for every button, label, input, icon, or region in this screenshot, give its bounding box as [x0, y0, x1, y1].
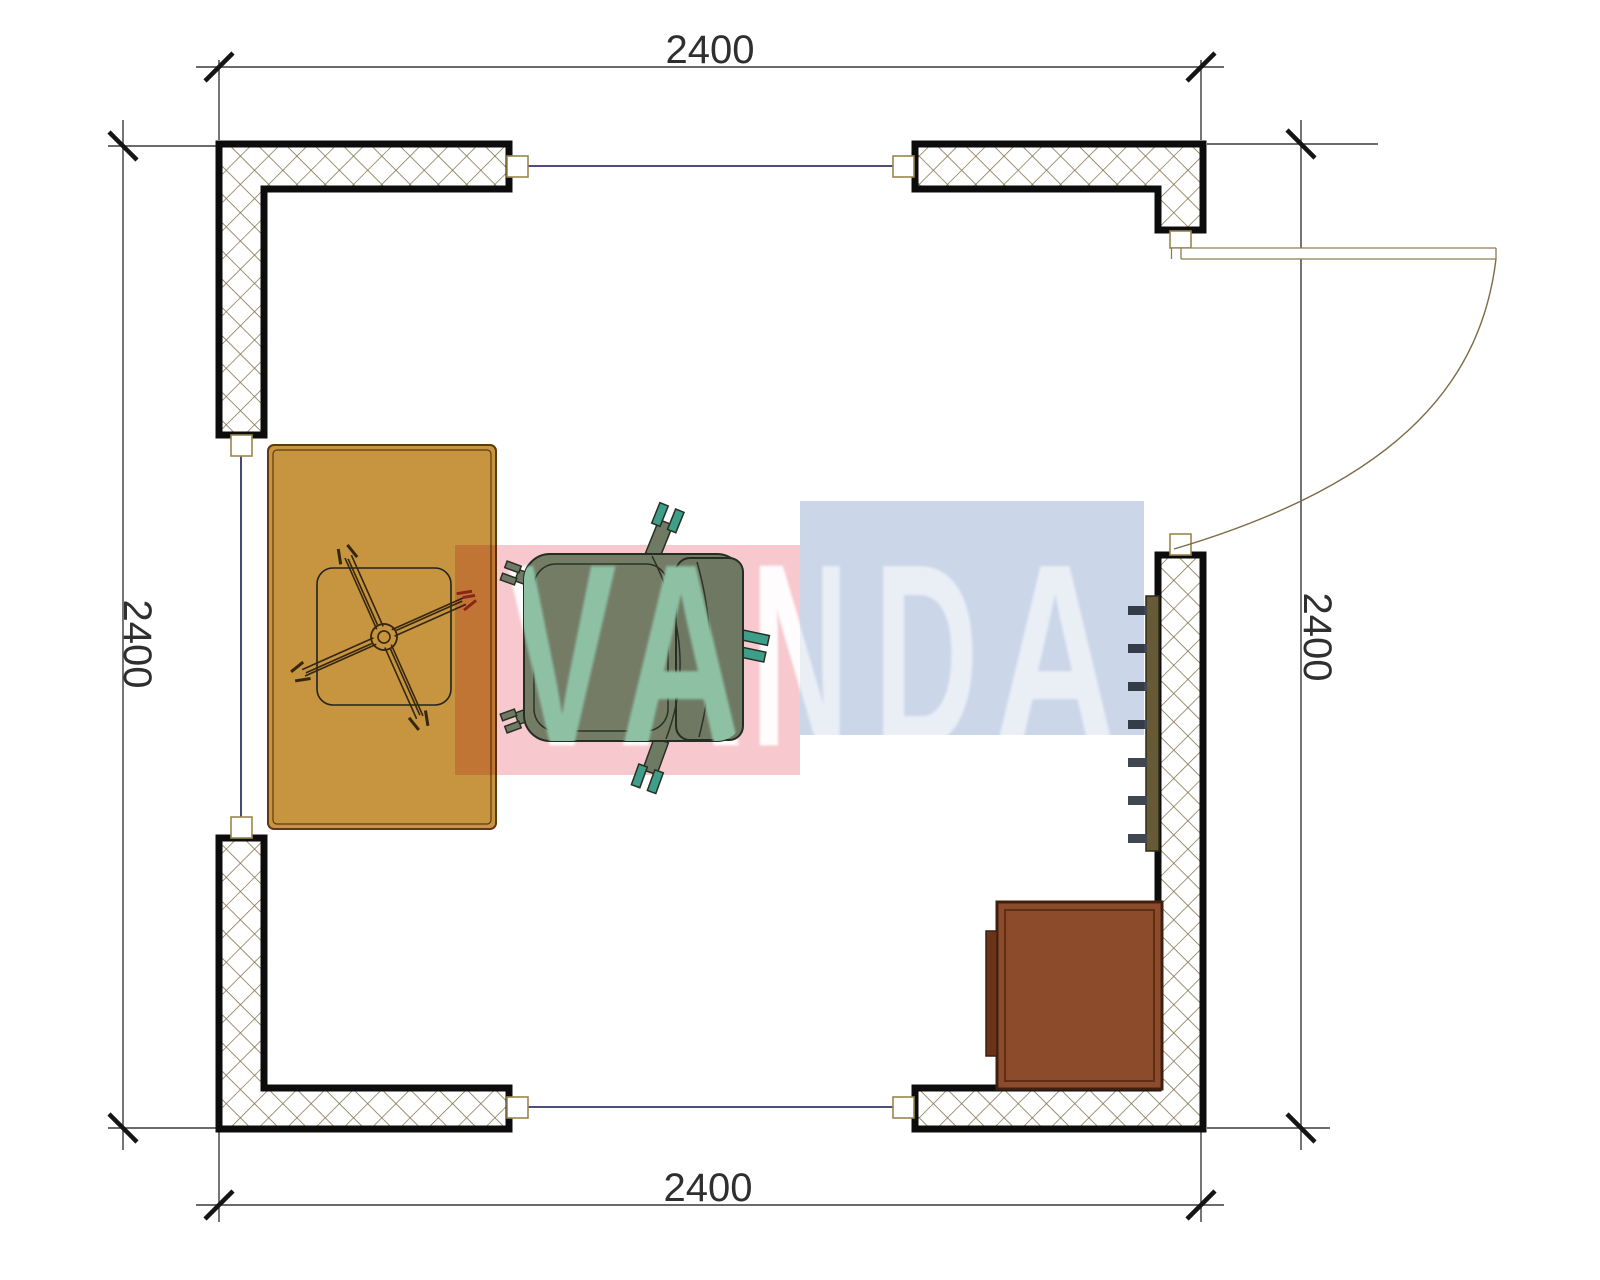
svg-text:2400: 2400 — [1295, 593, 1339, 682]
svg-text:2400: 2400 — [664, 1166, 753, 1210]
svg-text:2400: 2400 — [115, 600, 159, 689]
svg-text:2400: 2400 — [666, 28, 755, 72]
